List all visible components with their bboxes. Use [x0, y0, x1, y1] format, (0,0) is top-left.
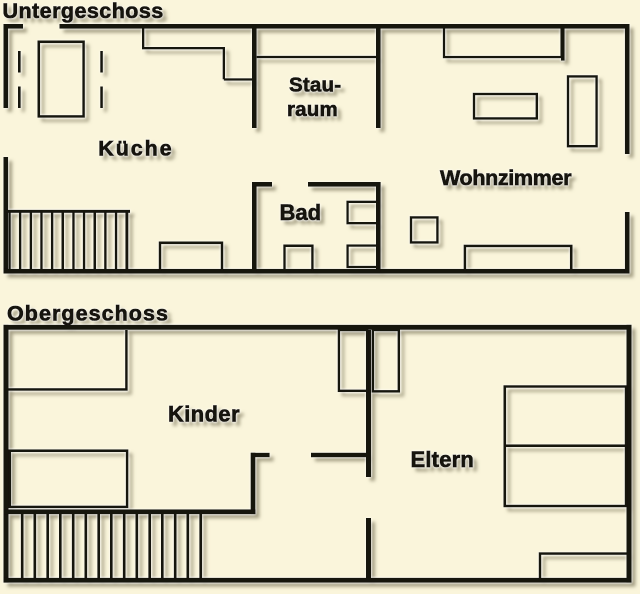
svg-text:Bad: Bad: [280, 200, 322, 225]
svg-text:Eltern: Eltern: [411, 447, 475, 472]
svg-text:Obergeschoss: Obergeschoss: [7, 302, 169, 326]
svg-text:Untergeschoss: Untergeschoss: [3, 0, 164, 23]
svg-text:Stau-: Stau-: [289, 73, 341, 96]
svg-text:Küche: Küche: [98, 137, 173, 161]
svg-text:raum: raum: [287, 98, 338, 121]
svg-text:Kinder: Kinder: [168, 402, 240, 427]
svg-text:Wohnzimmer: Wohnzimmer: [440, 166, 572, 190]
